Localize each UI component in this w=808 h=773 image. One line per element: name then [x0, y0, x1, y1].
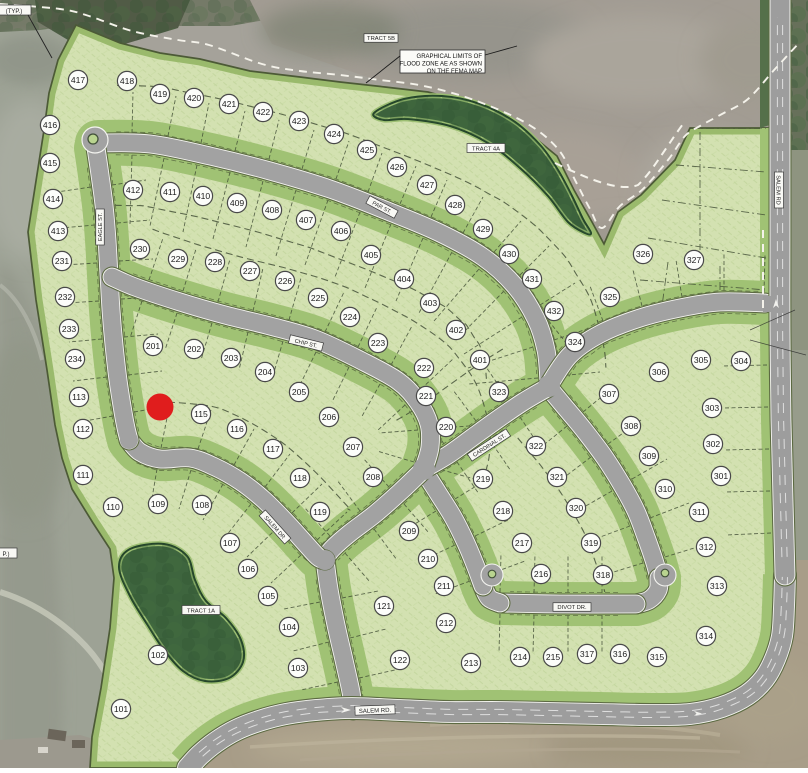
svg-text:427: 427 — [420, 180, 435, 190]
svg-text:431: 431 — [525, 274, 540, 284]
svg-text:SALEM RD.: SALEM RD. — [359, 708, 392, 715]
svg-text:410: 410 — [196, 191, 211, 201]
svg-text:420: 420 — [187, 93, 202, 103]
svg-text:117: 117 — [266, 444, 280, 454]
svg-text:233: 233 — [62, 324, 77, 334]
svg-text:ON THE FEMA MAP: ON THE FEMA MAP — [427, 69, 482, 75]
svg-text:230: 230 — [133, 244, 148, 254]
svg-text:(TYP.): (TYP.) — [6, 9, 23, 15]
svg-text:115: 115 — [194, 409, 208, 419]
svg-text:204: 204 — [258, 367, 273, 377]
svg-text:101: 101 — [114, 704, 129, 714]
svg-text:316: 316 — [613, 649, 628, 659]
svg-text:405: 405 — [364, 250, 379, 260]
svg-text:327: 327 — [687, 255, 702, 265]
svg-text:425: 425 — [360, 145, 375, 155]
svg-text:423: 423 — [292, 116, 307, 126]
svg-text:222: 222 — [417, 363, 432, 373]
svg-text:215: 215 — [546, 652, 561, 662]
svg-text:112: 112 — [76, 424, 90, 434]
svg-text:315: 315 — [650, 652, 665, 662]
svg-text:209: 209 — [402, 526, 417, 536]
svg-text:228: 228 — [208, 257, 223, 267]
svg-text:221: 221 — [419, 391, 434, 401]
svg-text:218: 218 — [496, 506, 511, 516]
svg-text:306: 306 — [652, 367, 667, 377]
svg-text:424: 424 — [327, 129, 342, 139]
svg-text:409: 409 — [230, 198, 245, 208]
svg-text:GRAPHICAL LIMITS OF: GRAPHICAL LIMITS OF — [417, 54, 483, 60]
svg-text:TRACT 4A: TRACT 4A — [472, 146, 500, 152]
svg-text:320: 320 — [569, 503, 584, 513]
svg-text:402: 402 — [449, 325, 464, 335]
svg-text:325: 325 — [603, 292, 618, 302]
svg-text:413: 413 — [51, 226, 66, 236]
svg-text:217: 217 — [515, 538, 530, 548]
svg-text:307: 307 — [602, 389, 617, 399]
svg-text:212: 212 — [439, 618, 454, 628]
svg-text:321: 321 — [550, 472, 565, 482]
svg-text:414: 414 — [46, 194, 61, 204]
svg-text:219: 219 — [476, 474, 491, 484]
svg-text:403: 403 — [423, 298, 438, 308]
svg-text:318: 318 — [596, 570, 611, 580]
svg-text:429: 429 — [476, 224, 491, 234]
svg-text:419: 419 — [153, 89, 168, 99]
svg-text:211: 211 — [437, 581, 451, 591]
svg-text:214: 214 — [513, 652, 528, 662]
svg-text:231: 231 — [55, 256, 70, 266]
svg-text:232: 232 — [58, 292, 73, 302]
svg-text:P.): P.) — [3, 552, 10, 558]
svg-text:104: 104 — [282, 622, 297, 632]
svg-text:107: 107 — [223, 538, 238, 548]
svg-text:408: 408 — [265, 205, 280, 215]
svg-text:102: 102 — [151, 650, 166, 660]
svg-text:207: 207 — [346, 442, 361, 452]
svg-text:103: 103 — [291, 663, 306, 673]
svg-text:305: 305 — [694, 355, 709, 365]
svg-text:412: 412 — [126, 185, 141, 195]
svg-text:310: 310 — [658, 484, 673, 494]
svg-text:407: 407 — [299, 215, 314, 225]
svg-text:110: 110 — [106, 502, 120, 512]
svg-text:416: 416 — [43, 120, 58, 130]
svg-text:227: 227 — [243, 266, 258, 276]
svg-text:TRACT 1A: TRACT 1A — [187, 608, 215, 614]
svg-text:304: 304 — [734, 356, 749, 366]
svg-text:404: 404 — [397, 274, 412, 284]
svg-text:206: 206 — [322, 412, 337, 422]
svg-text:SALEM RD: SALEM RD — [775, 175, 781, 205]
svg-text:421: 421 — [222, 99, 237, 109]
svg-text:322: 322 — [529, 441, 544, 451]
svg-text:406: 406 — [334, 226, 349, 236]
svg-text:213: 213 — [464, 658, 479, 668]
svg-text:323: 323 — [492, 387, 507, 397]
svg-text:205: 205 — [292, 387, 307, 397]
svg-text:202: 202 — [187, 344, 202, 354]
svg-text:111: 111 — [76, 470, 89, 480]
svg-text:226: 226 — [278, 276, 293, 286]
svg-text:113: 113 — [72, 392, 86, 402]
svg-text:418: 418 — [120, 76, 135, 86]
svg-text:309: 309 — [642, 451, 657, 461]
svg-text:225: 225 — [311, 293, 326, 303]
svg-text:TRACT 5B: TRACT 5B — [367, 36, 395, 42]
svg-text:118: 118 — [293, 473, 307, 483]
svg-text:417: 417 — [71, 75, 86, 85]
svg-text:324: 324 — [568, 337, 583, 347]
svg-text:302: 302 — [706, 439, 721, 449]
svg-text:311: 311 — [692, 507, 706, 517]
svg-text:224: 224 — [343, 312, 358, 322]
svg-text:109: 109 — [151, 499, 166, 509]
svg-text:201: 201 — [146, 341, 161, 351]
svg-text:105: 105 — [261, 591, 276, 601]
svg-text:312: 312 — [699, 542, 714, 552]
svg-text:313: 313 — [710, 581, 725, 591]
svg-text:303: 303 — [705, 403, 720, 413]
svg-text:220: 220 — [439, 422, 454, 432]
svg-text:FLOOD ZONE AE AS SHOWN: FLOOD ZONE AE AS SHOWN — [400, 62, 482, 68]
svg-text:426: 426 — [390, 162, 405, 172]
svg-text:415: 415 — [43, 158, 58, 168]
svg-text:122: 122 — [393, 655, 408, 665]
svg-text:203: 203 — [224, 353, 239, 363]
svg-text:308: 308 — [624, 421, 639, 431]
svg-text:116: 116 — [230, 424, 244, 434]
svg-text:432: 432 — [547, 306, 562, 316]
svg-text:430: 430 — [502, 249, 517, 259]
svg-text:319: 319 — [584, 538, 599, 548]
svg-text:317: 317 — [580, 649, 595, 659]
svg-text:EAGLE ST.: EAGLE ST. — [98, 212, 104, 241]
svg-text:229: 229 — [171, 254, 186, 264]
svg-text:208: 208 — [366, 472, 381, 482]
svg-text:422: 422 — [256, 107, 271, 117]
svg-text:216: 216 — [534, 569, 549, 579]
svg-text:223: 223 — [371, 338, 386, 348]
svg-text:210: 210 — [421, 554, 436, 564]
svg-text:119: 119 — [313, 507, 327, 517]
svg-text:301: 301 — [714, 471, 729, 481]
svg-text:106: 106 — [241, 564, 256, 574]
svg-text:314: 314 — [699, 631, 714, 641]
svg-text:108: 108 — [195, 500, 210, 510]
svg-text:428: 428 — [448, 200, 463, 210]
svg-text:DIVOT DR.: DIVOT DR. — [557, 605, 587, 611]
svg-text:411: 411 — [163, 187, 177, 197]
svg-text:234: 234 — [68, 354, 83, 364]
svg-text:326: 326 — [636, 249, 651, 259]
svg-text:121: 121 — [377, 601, 392, 611]
svg-text:401: 401 — [473, 355, 488, 365]
